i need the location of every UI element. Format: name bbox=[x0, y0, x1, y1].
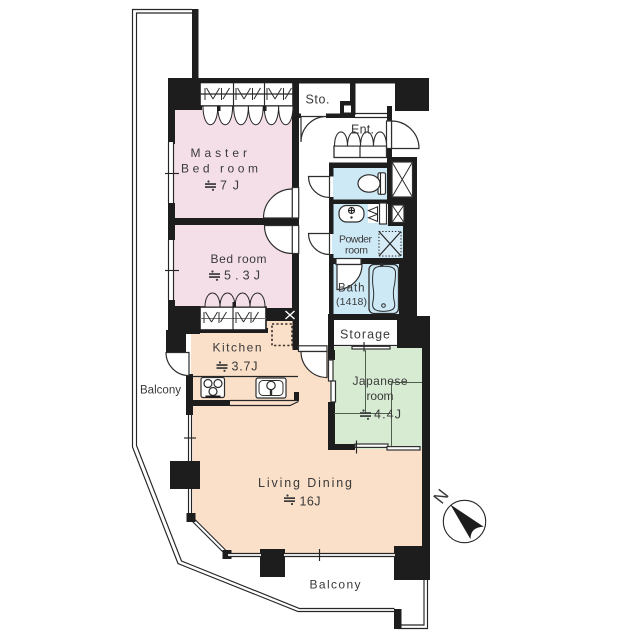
svg-text:Master: Master bbox=[191, 146, 248, 160]
svg-text:4.4J: 4.4J bbox=[374, 408, 401, 422]
svg-text:Bath: Bath bbox=[338, 283, 365, 295]
svg-text:Sto.: Sto. bbox=[306, 93, 330, 107]
svg-text:Living Dining: Living Dining bbox=[258, 476, 352, 490]
svg-text:Japanese: Japanese bbox=[353, 374, 408, 388]
svg-text:Balcony: Balcony bbox=[310, 578, 361, 592]
svg-text:room: room bbox=[345, 245, 368, 257]
svg-text:(1418): (1418) bbox=[336, 296, 367, 308]
svg-text:Storage: Storage bbox=[340, 328, 390, 342]
svg-text:Ent.: Ent. bbox=[351, 123, 374, 137]
svg-text:16J: 16J bbox=[300, 495, 321, 509]
svg-text:room: room bbox=[367, 389, 394, 403]
svg-text:Balcony: Balcony bbox=[140, 385, 181, 397]
svg-text:3.7J: 3.7J bbox=[232, 360, 258, 374]
svg-text:Bed room: Bed room bbox=[211, 252, 267, 266]
svg-text:5.3J: 5.3J bbox=[224, 269, 260, 283]
